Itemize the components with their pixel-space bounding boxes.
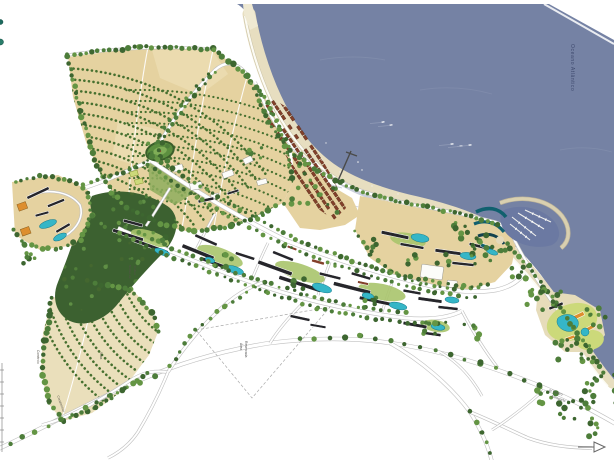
tree xyxy=(107,394,111,398)
tree xyxy=(361,240,366,245)
tree xyxy=(109,173,113,177)
tree xyxy=(211,225,217,231)
tree xyxy=(121,170,126,175)
tree xyxy=(304,252,308,256)
tree xyxy=(191,228,198,235)
tree xyxy=(144,244,148,248)
tree xyxy=(383,278,387,282)
tree xyxy=(33,256,37,260)
tree xyxy=(240,221,243,224)
tree xyxy=(388,318,392,322)
tree xyxy=(93,405,98,410)
tree xyxy=(287,163,291,167)
tree xyxy=(416,277,421,282)
tree xyxy=(119,201,123,205)
tree xyxy=(156,140,160,144)
tree xyxy=(233,271,238,276)
tree xyxy=(435,261,440,266)
tree xyxy=(448,352,454,358)
tree xyxy=(362,272,365,275)
tree xyxy=(104,398,108,402)
tree xyxy=(554,292,560,298)
tree xyxy=(312,255,316,259)
tree xyxy=(587,348,593,354)
tree xyxy=(156,45,160,49)
tree xyxy=(156,329,160,333)
tree xyxy=(348,267,351,270)
tree xyxy=(456,293,461,298)
tree xyxy=(585,307,590,312)
tree xyxy=(293,237,298,242)
tree xyxy=(437,281,442,286)
tree xyxy=(338,311,342,315)
tree xyxy=(412,252,418,258)
tree xyxy=(42,379,48,385)
tree xyxy=(373,337,378,342)
tree xyxy=(305,293,308,296)
tree xyxy=(204,227,209,232)
tree xyxy=(290,282,295,287)
tree xyxy=(77,101,81,105)
tree xyxy=(527,263,532,268)
tree xyxy=(539,280,543,284)
tree xyxy=(262,280,265,283)
tree xyxy=(200,197,205,202)
tree xyxy=(105,282,111,288)
tree xyxy=(247,148,252,153)
tree xyxy=(124,234,128,238)
tree xyxy=(179,226,185,232)
tree xyxy=(14,232,19,237)
tree xyxy=(405,261,410,266)
tree xyxy=(237,280,240,283)
tree xyxy=(74,413,79,418)
tree xyxy=(173,112,177,116)
tree xyxy=(124,205,130,211)
tree xyxy=(32,429,38,435)
forest-dot xyxy=(138,200,142,204)
tree xyxy=(204,82,207,85)
tree xyxy=(207,72,210,75)
tree xyxy=(590,360,595,365)
tree xyxy=(37,173,42,178)
tree xyxy=(437,209,440,212)
tree xyxy=(224,276,227,279)
tree xyxy=(240,69,245,74)
tree xyxy=(162,126,165,129)
tree xyxy=(201,323,204,326)
tree xyxy=(273,203,278,208)
tree xyxy=(69,73,73,77)
forest-dot xyxy=(81,309,83,311)
tree xyxy=(265,102,268,105)
tree xyxy=(142,161,145,164)
tree xyxy=(474,420,480,426)
tree xyxy=(116,391,119,394)
tree xyxy=(424,321,428,325)
tree xyxy=(398,201,401,204)
tree xyxy=(113,48,118,53)
tree xyxy=(170,165,176,171)
tree xyxy=(465,230,470,235)
tree xyxy=(152,373,158,379)
tree xyxy=(125,45,131,51)
tree xyxy=(145,371,149,375)
nucleus-label-line2: Cultivo xyxy=(133,266,137,276)
tree xyxy=(342,334,348,340)
tree xyxy=(144,44,148,48)
tree xyxy=(473,247,477,251)
tree xyxy=(463,225,466,228)
tree xyxy=(298,250,301,253)
tree xyxy=(110,284,115,289)
tree xyxy=(298,161,302,165)
tree xyxy=(171,256,176,261)
tree xyxy=(423,277,428,282)
tree xyxy=(126,288,131,293)
tree xyxy=(370,275,373,278)
tree xyxy=(89,180,93,184)
tree xyxy=(166,128,170,132)
tree xyxy=(98,167,103,172)
tree xyxy=(107,48,112,53)
tree xyxy=(588,389,591,392)
tree xyxy=(234,218,238,222)
tree xyxy=(260,146,263,149)
tree xyxy=(40,246,46,252)
tree xyxy=(369,264,374,269)
tree xyxy=(180,258,184,262)
tree xyxy=(78,238,84,244)
tree xyxy=(411,285,416,290)
tree xyxy=(157,148,161,152)
tree xyxy=(490,245,494,249)
tree xyxy=(233,204,237,208)
tree xyxy=(503,248,508,253)
tree xyxy=(551,299,556,304)
forest-dot xyxy=(117,238,121,242)
tree xyxy=(214,206,219,211)
tree xyxy=(293,299,297,303)
tree xyxy=(483,232,489,238)
tree xyxy=(453,210,458,215)
tree xyxy=(318,257,321,260)
tree xyxy=(590,393,596,399)
tree xyxy=(541,290,545,294)
tree xyxy=(19,434,25,440)
tree xyxy=(441,209,446,214)
tree xyxy=(458,230,464,236)
tree xyxy=(149,45,154,50)
tree xyxy=(553,340,559,346)
tree xyxy=(72,83,78,89)
tree xyxy=(298,201,302,205)
tree xyxy=(34,244,38,248)
tree xyxy=(64,53,70,59)
tree xyxy=(597,364,602,369)
tree xyxy=(274,119,278,123)
tree xyxy=(157,240,160,243)
tree xyxy=(473,262,476,265)
tree xyxy=(146,163,150,167)
tree xyxy=(571,399,575,403)
tree xyxy=(354,187,359,192)
tree xyxy=(530,269,534,273)
tree xyxy=(596,305,602,311)
tree xyxy=(243,73,248,78)
tree xyxy=(478,359,484,365)
tree xyxy=(59,246,63,250)
tree xyxy=(463,358,467,362)
tree xyxy=(186,227,192,233)
tree xyxy=(263,113,268,118)
tree xyxy=(495,222,500,227)
tree xyxy=(95,178,99,182)
tree xyxy=(534,296,540,302)
tree xyxy=(404,310,409,315)
tree xyxy=(108,190,113,195)
tree xyxy=(177,249,181,253)
tree xyxy=(387,309,391,313)
tree xyxy=(120,47,126,53)
tree xyxy=(516,254,522,260)
tree xyxy=(266,119,271,124)
tree xyxy=(522,378,527,383)
tree xyxy=(420,321,424,325)
forest-dot xyxy=(62,277,67,282)
tree xyxy=(601,371,605,375)
tree xyxy=(603,315,608,320)
tree xyxy=(29,252,33,256)
tree xyxy=(140,374,145,379)
tree xyxy=(88,201,91,204)
tree xyxy=(54,247,58,251)
forest-dot xyxy=(71,276,75,280)
tree xyxy=(153,316,158,321)
tree xyxy=(175,45,179,49)
tree xyxy=(534,275,537,278)
tree xyxy=(117,221,121,225)
tree xyxy=(43,337,49,343)
tree xyxy=(41,359,46,364)
tree xyxy=(419,345,423,349)
tree xyxy=(521,265,526,270)
tree xyxy=(102,48,106,52)
tree xyxy=(404,200,410,206)
tree xyxy=(363,298,368,303)
tree xyxy=(43,174,48,179)
tree xyxy=(433,332,437,336)
tree xyxy=(394,199,398,203)
tree xyxy=(320,297,325,302)
tree xyxy=(447,264,450,267)
tree xyxy=(276,228,280,232)
tree xyxy=(70,78,74,82)
tree xyxy=(432,320,438,326)
tree xyxy=(471,285,474,288)
tree xyxy=(123,225,127,229)
tree xyxy=(590,417,594,421)
tree xyxy=(86,191,90,195)
tree xyxy=(366,192,369,195)
tree xyxy=(170,122,175,127)
tree xyxy=(151,248,155,252)
tree xyxy=(283,143,289,149)
tree xyxy=(266,291,271,296)
tree xyxy=(357,306,360,309)
tree xyxy=(447,282,450,285)
tree xyxy=(84,52,88,56)
tree xyxy=(338,254,343,259)
tree xyxy=(591,322,596,327)
tree xyxy=(586,357,590,361)
tree xyxy=(168,118,172,122)
tree xyxy=(579,406,583,410)
tree xyxy=(135,210,140,215)
tree xyxy=(139,241,142,244)
tree xyxy=(155,157,160,162)
tree xyxy=(102,175,106,179)
tree xyxy=(373,302,377,306)
tree xyxy=(167,364,171,368)
tree xyxy=(372,307,376,311)
tree xyxy=(597,324,603,330)
tree xyxy=(243,219,247,223)
tree xyxy=(405,321,410,326)
tree xyxy=(305,242,310,247)
tree xyxy=(426,289,430,293)
tree xyxy=(483,252,489,258)
tree xyxy=(340,265,344,269)
tree xyxy=(194,263,199,268)
tree xyxy=(565,347,570,352)
tree xyxy=(44,386,50,392)
forest-dot xyxy=(128,242,131,245)
tree xyxy=(77,108,82,113)
tree xyxy=(146,159,149,162)
tree xyxy=(298,336,303,341)
tree xyxy=(327,298,332,303)
tree xyxy=(152,218,156,222)
tree xyxy=(202,78,205,81)
tree xyxy=(19,179,23,183)
tree xyxy=(45,393,51,399)
tree xyxy=(165,144,170,149)
tree xyxy=(178,350,181,353)
tree xyxy=(521,260,525,264)
tree xyxy=(288,148,293,153)
tree xyxy=(376,258,381,263)
tree xyxy=(453,225,459,231)
ocean-label: Oceano Atlântico xyxy=(569,44,575,91)
tree xyxy=(157,221,163,227)
tree xyxy=(528,289,534,295)
tree xyxy=(537,399,543,405)
tree xyxy=(103,179,108,184)
tree xyxy=(144,306,148,310)
tree xyxy=(153,323,159,329)
tree xyxy=(88,209,91,212)
tree xyxy=(422,328,427,333)
tree xyxy=(284,137,288,141)
tree xyxy=(314,168,320,174)
tree xyxy=(341,302,346,307)
tree xyxy=(446,286,449,289)
tree xyxy=(485,440,489,444)
tree xyxy=(328,336,333,341)
tree xyxy=(189,191,193,195)
tree xyxy=(108,185,113,190)
tree xyxy=(300,302,305,307)
tree xyxy=(397,283,400,286)
tree xyxy=(448,291,453,296)
tree xyxy=(166,164,170,168)
tree xyxy=(169,179,173,183)
tree xyxy=(534,387,540,393)
tree xyxy=(56,177,61,182)
tree xyxy=(561,405,567,411)
tree xyxy=(358,262,362,266)
tree xyxy=(29,242,34,247)
tree xyxy=(191,254,196,259)
tree xyxy=(331,186,335,190)
tree xyxy=(164,175,168,179)
tree xyxy=(285,286,290,291)
tree xyxy=(174,115,179,120)
tree xyxy=(45,245,51,251)
nucleus-label-line1: Núcleo de xyxy=(128,265,132,279)
screenshot-stage: Oceano Atlântico Vilas Comércio Condomín… xyxy=(0,0,614,460)
tree xyxy=(439,285,442,288)
tree xyxy=(374,266,379,271)
tree xyxy=(250,82,253,85)
tree xyxy=(78,52,82,56)
tree xyxy=(66,244,70,248)
tree xyxy=(473,295,477,299)
tree xyxy=(20,239,24,243)
tree xyxy=(289,201,295,207)
tree xyxy=(269,281,274,286)
master-plan-map: Oceano Atlântico Vilas Comércio Condomín… xyxy=(0,0,614,460)
tree xyxy=(25,177,28,180)
tree xyxy=(182,341,187,346)
tree xyxy=(326,203,329,206)
tree xyxy=(199,257,203,261)
tree xyxy=(380,268,385,273)
tree xyxy=(383,264,387,268)
tree xyxy=(222,198,225,201)
tree xyxy=(354,268,359,273)
tree xyxy=(259,103,263,107)
tree xyxy=(379,308,383,312)
tree xyxy=(494,366,498,370)
tree xyxy=(278,286,281,289)
tree xyxy=(183,105,186,108)
tree xyxy=(362,305,367,310)
tree xyxy=(558,305,563,310)
tree xyxy=(214,71,217,74)
tree xyxy=(444,321,447,324)
tree xyxy=(305,184,309,188)
tree xyxy=(149,309,156,316)
tree xyxy=(419,282,422,285)
tree xyxy=(432,284,436,288)
tree xyxy=(300,240,304,244)
forest-dot xyxy=(120,257,124,261)
tree xyxy=(332,178,338,184)
tree xyxy=(343,311,348,316)
tree xyxy=(192,45,197,50)
